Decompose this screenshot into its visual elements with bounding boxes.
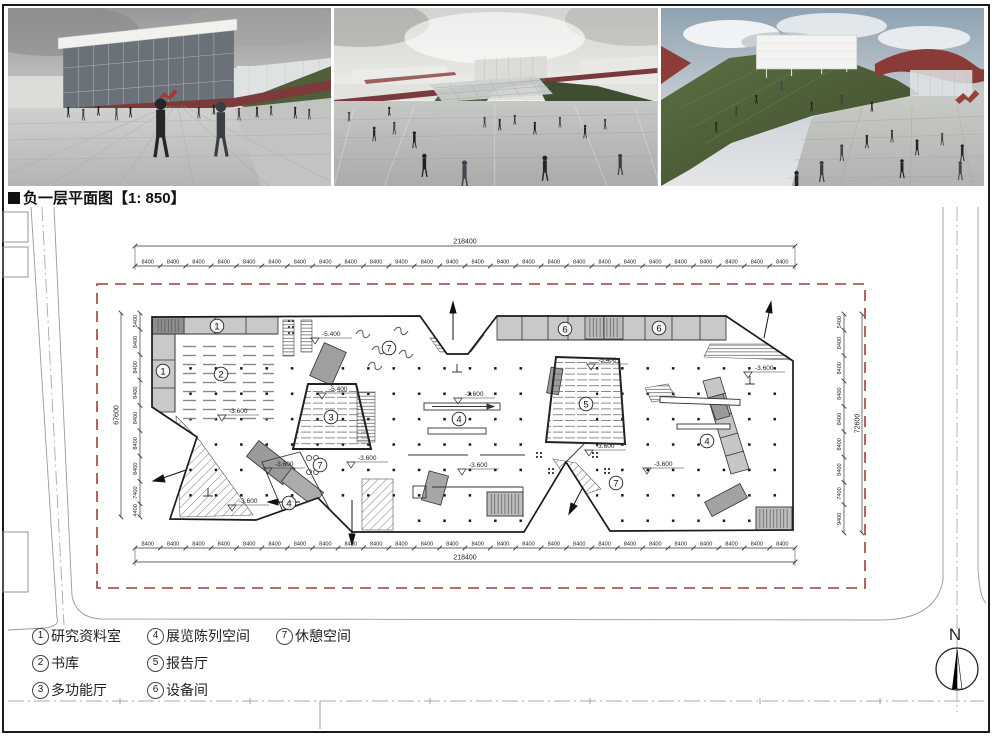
svg-text:6: 6	[656, 323, 661, 334]
dim-label: 8400	[446, 260, 458, 266]
dim-label: 7400	[133, 486, 139, 498]
dim-label: 8400	[837, 337, 843, 349]
dim-label: 8400	[370, 542, 382, 548]
legend-item: 7休憩空间	[276, 626, 351, 646]
room-label: 1	[156, 364, 170, 378]
svg-text:-5.400: -5.400	[598, 357, 617, 364]
legend-item: 1研究资料室	[32, 626, 121, 646]
svg-text:-3.600: -3.600	[229, 408, 248, 415]
dim-label: 8400	[141, 260, 153, 266]
dim-label: 8400	[675, 542, 687, 548]
dim-label: 8400	[133, 336, 139, 348]
legend-label: 休憩空间	[295, 626, 351, 646]
dim-label: 8400	[345, 260, 357, 266]
dim-label: 8400	[624, 542, 636, 548]
dim-label: 8400	[548, 542, 560, 548]
room-label: 4	[282, 496, 296, 510]
room-label: 7	[382, 341, 396, 355]
dim-label: 218400	[453, 555, 476, 562]
dim-label: 8400	[776, 542, 788, 548]
svg-text:-5.400: -5.400	[329, 386, 348, 393]
dim-bottom: 8400840084008400840084008400840084008400…	[133, 542, 798, 567]
legend-label: 多功能厅	[51, 680, 107, 700]
dim-label: 8400	[218, 542, 230, 548]
dim-label: 8400	[446, 542, 458, 548]
dim-label: 8400	[725, 542, 737, 548]
dim-label: 8400	[294, 260, 306, 266]
dim-label: 8400	[700, 542, 712, 548]
room-label: 4	[452, 412, 466, 426]
room-label: 2	[214, 367, 228, 381]
compass-needle-outline	[957, 649, 962, 689]
legend-column: 4展览陈列空间 5报告厅 6设备间	[147, 626, 250, 700]
dim-label: 8400	[700, 260, 712, 266]
dim-label: 8400	[243, 542, 255, 548]
dim-label: 8400	[497, 260, 509, 266]
dim-label: 8400	[837, 438, 843, 450]
dim-label: 8400	[837, 362, 843, 374]
dim-label: 67600	[114, 405, 121, 425]
room-label: 3	[324, 410, 338, 424]
dim-label: 8400	[649, 260, 661, 266]
svg-text:4: 4	[456, 414, 461, 425]
dim-label: 8400	[345, 542, 357, 548]
legend-label: 研究资料室	[51, 626, 121, 646]
dim-label: 8400	[751, 260, 763, 266]
legend-column: 7休憩空间	[276, 626, 351, 700]
svg-text:1: 1	[160, 366, 165, 377]
svg-text:2: 2	[218, 369, 223, 380]
legend-number-badge: 1	[32, 628, 49, 645]
dim-label: 8400	[598, 260, 610, 266]
dim-label: 7400	[837, 487, 843, 499]
dim-label: 8400	[573, 542, 585, 548]
svg-text:5: 5	[583, 399, 588, 410]
dim-label: 8400	[725, 260, 737, 266]
dim-label: 8400	[421, 542, 433, 548]
dim-label: 8400	[141, 542, 153, 548]
legend-number-badge: 5	[147, 655, 164, 672]
dim-label: 8400	[319, 260, 331, 266]
dim-label: 8400	[751, 542, 763, 548]
dim-label: 8400	[133, 412, 139, 424]
dim-label: 8400	[497, 542, 509, 548]
dim-label: 8400	[294, 542, 306, 548]
dim-left: 5400840084008400840084008400740044006760…	[114, 311, 143, 520]
dim-label: 8400	[837, 463, 843, 475]
room-label: 5	[579, 397, 593, 411]
legend-number-badge: 7	[276, 628, 293, 645]
room-label: 4	[700, 434, 714, 448]
svg-text:-5.400: -5.400	[322, 331, 341, 338]
legend-column: 1研究资料室 2书库 3多功能厅	[32, 626, 121, 700]
dim-label: 72600	[855, 414, 862, 434]
svg-text:1: 1	[214, 321, 219, 332]
dim-label: 8400	[395, 260, 407, 266]
dim-label: 8400	[624, 260, 636, 266]
svg-text:-3.600: -3.600	[469, 462, 488, 469]
dim-label: 8400	[370, 260, 382, 266]
dim-label: 5400	[837, 316, 843, 328]
svg-text:-3.600: -3.600	[275, 461, 294, 468]
dim-label: 8400	[837, 387, 843, 399]
legend-number-badge: 2	[32, 655, 49, 672]
dim-label: 8400	[133, 437, 139, 449]
dim-label: 9400	[837, 513, 843, 525]
dim-label: 8400	[268, 260, 280, 266]
svg-text:3: 3	[328, 412, 333, 423]
svg-text:7: 7	[613, 478, 618, 489]
dim-label: 8400	[675, 260, 687, 266]
svg-text:-3.600: -3.600	[596, 443, 615, 450]
dim-label: 8400	[522, 542, 534, 548]
dim-top: 8400840084008400840084008400840084008400…	[133, 239, 798, 271]
room-legend: 1研究资料室 2书库 3多功能厅 4展览陈列空间 5报告厅 6设备间 7休憩空间	[32, 626, 351, 700]
legend-number-badge: 4	[147, 628, 164, 645]
legend-item: 2书库	[32, 653, 121, 673]
legend-label: 报告厅	[166, 653, 208, 673]
dim-label: 8400	[471, 542, 483, 548]
room-label: 7	[313, 458, 327, 472]
dim-right: 5400840084008400840084008400740094007260…	[837, 312, 864, 536]
dim-label: 8400	[776, 260, 788, 266]
dim-label: 8400	[573, 260, 585, 266]
legend-item: 3多功能厅	[32, 680, 121, 700]
dim-label: 8400	[522, 260, 534, 266]
room-label: 6	[558, 322, 572, 336]
dim-label: 8400	[218, 260, 230, 266]
dim-label: 8400	[548, 260, 560, 266]
dim-label: 4400	[133, 504, 139, 516]
dim-label: 8400	[649, 542, 661, 548]
svg-text:4: 4	[286, 498, 291, 509]
dim-label: 8400	[133, 462, 139, 474]
dim-label: 8400	[395, 542, 407, 548]
dim-label: 8400	[268, 542, 280, 548]
legend-item: 6设备间	[147, 680, 250, 700]
presentation-board: 负一层平面图【1: 850】	[0, 0, 992, 736]
svg-text:-3.600: -3.600	[755, 365, 774, 372]
dim-label: 8400	[421, 260, 433, 266]
legend-number-badge: 6	[147, 682, 164, 699]
dim-label: 8400	[243, 260, 255, 266]
dim-label: 8400	[598, 542, 610, 548]
svg-text:-3.600: -3.600	[465, 391, 484, 398]
svg-text:-3.600: -3.600	[654, 461, 673, 468]
building-plan	[152, 302, 793, 545]
dim-label: 8400	[133, 386, 139, 398]
dim-label: 8400	[133, 361, 139, 373]
dim-label: 8400	[319, 542, 331, 548]
svg-text:4: 4	[704, 436, 709, 447]
dim-label: 8400	[167, 260, 179, 266]
dim-label: 5400	[133, 315, 139, 327]
north-label: N	[949, 625, 961, 644]
dim-label: 8400	[167, 542, 179, 548]
legend-label: 设备间	[166, 680, 208, 700]
svg-text:6: 6	[562, 324, 567, 335]
north-compass: N	[936, 625, 978, 690]
room-label: 6	[652, 321, 666, 335]
legend-item: 5报告厅	[147, 653, 250, 673]
room-label: 7	[609, 476, 623, 490]
legend-label: 书库	[51, 653, 79, 673]
legend-item: 4展览陈列空间	[147, 626, 250, 646]
legend-number-badge: 3	[32, 682, 49, 699]
dim-label: 8400	[471, 260, 483, 266]
svg-text:-3.600: -3.600	[239, 498, 258, 505]
compass-needle	[952, 649, 957, 689]
svg-text:7: 7	[386, 343, 391, 354]
dim-label: 218400	[453, 239, 476, 246]
room-label: 1	[210, 319, 224, 333]
dim-label: 8400	[192, 260, 204, 266]
legend-label: 展览陈列空间	[166, 626, 250, 646]
svg-text:-3.600: -3.600	[358, 455, 377, 462]
dim-label: 8400	[837, 413, 843, 425]
svg-text:7: 7	[317, 460, 322, 471]
dim-label: 8400	[192, 542, 204, 548]
